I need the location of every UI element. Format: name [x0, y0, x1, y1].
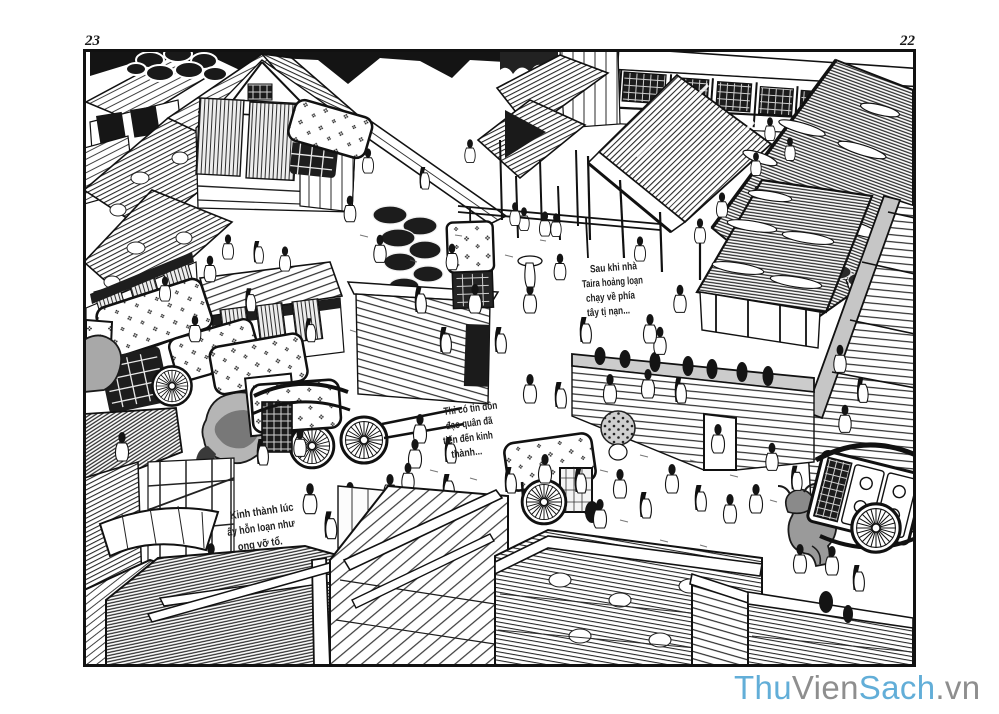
svg-text:ThuVienSach.vn: ThuVienSach.vn [734, 669, 980, 706]
svg-text:22: 22 [899, 33, 916, 49]
svg-text:23: 23 [84, 33, 101, 49]
